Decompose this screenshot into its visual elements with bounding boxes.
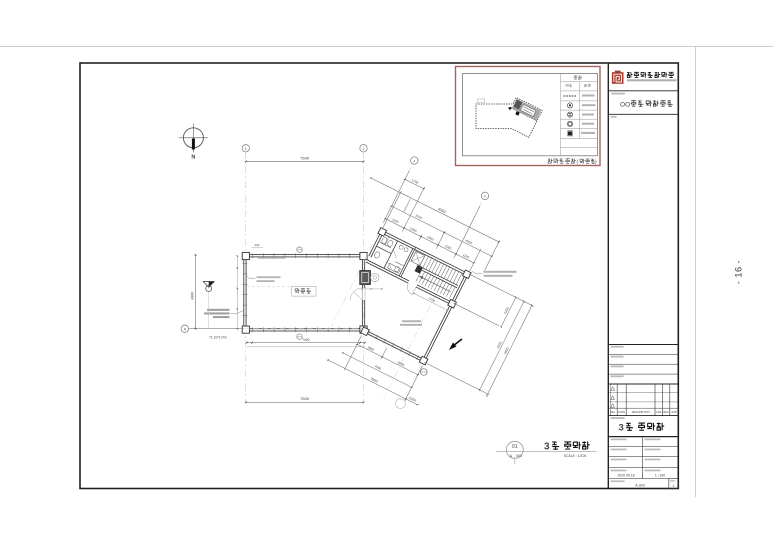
- svg-text:CHK: CHK: [656, 410, 662, 414]
- svg-text:APP: APP: [671, 410, 676, 414]
- svg-text:REV: REV: [610, 410, 616, 414]
- svg-text:DATE: DATE: [618, 410, 625, 414]
- svg-text:71.1071.FIN: 71.1071.FIN: [209, 336, 227, 340]
- svg-text:1 / 100: 1 / 100: [655, 474, 665, 478]
- svg-text:2: 2: [363, 147, 365, 151]
- svg-text:- 16 -: - 16 -: [734, 260, 744, 284]
- svg-text:REV: REV: [663, 410, 669, 414]
- svg-text:1: 1: [673, 484, 675, 488]
- svg-text:3: 3: [619, 423, 624, 434]
- svg-text:01: 01: [512, 444, 518, 450]
- svg-text:OO: OO: [620, 101, 630, 108]
- svg-text:4900: 4900: [191, 292, 195, 300]
- svg-text:7600: 7600: [300, 155, 310, 160]
- svg-text:300: 300: [255, 243, 260, 247]
- svg-text:503: 503: [516, 454, 522, 458]
- svg-text:7600: 7600: [300, 396, 310, 401]
- svg-text:A-303: A-303: [635, 483, 645, 487]
- svg-text:SCALE : 1/100: SCALE : 1/100: [564, 454, 587, 458]
- svg-text:2020.05.18: 2020.05.18: [618, 474, 635, 478]
- svg-text:7400: 7400: [302, 338, 309, 342]
- svg-text:3: 3: [544, 442, 550, 453]
- svg-text:DESCRIPTION: DESCRIPTION: [632, 410, 650, 414]
- svg-text:1: 1: [245, 147, 247, 151]
- svg-text:N: N: [191, 155, 195, 161]
